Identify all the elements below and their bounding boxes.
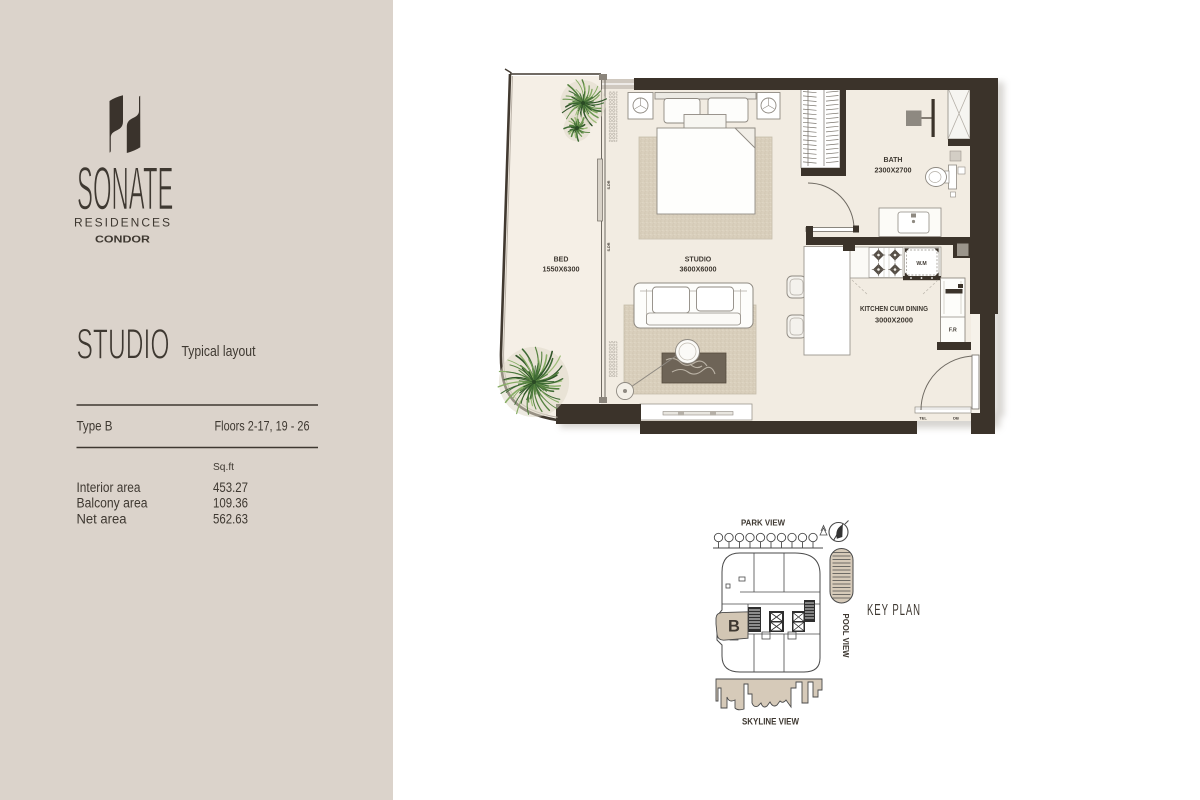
svg-text:Sq.ft: Sq.ft <box>213 461 234 473</box>
svg-text:S.DR: S.DR <box>607 180 611 189</box>
svg-text:BED: BED <box>554 257 569 264</box>
svg-text:3600X6000: 3600X6000 <box>680 267 717 274</box>
svg-text:RESIDENCES: RESIDENCES <box>74 216 170 230</box>
svg-text:W.M: W.M <box>916 261 926 267</box>
svg-text:TEL: TEL <box>919 416 927 421</box>
svg-text:453.27: 453.27 <box>213 480 248 495</box>
svg-text:CONDOR: CONDOR <box>95 235 151 246</box>
svg-text:SONATE: SONATE <box>77 155 174 223</box>
svg-text:DB: DB <box>953 416 959 421</box>
svg-text:Net area: Net area <box>77 512 127 527</box>
svg-text:STUDIO: STUDIO <box>685 257 712 264</box>
svg-text:KITCHEN CUM DINING: KITCHEN CUM DINING <box>860 306 928 313</box>
svg-text:Interior area: Interior area <box>77 480 141 495</box>
svg-text:1550X6300: 1550X6300 <box>543 267 580 274</box>
svg-text:PARK VIEW: PARK VIEW <box>741 518 786 528</box>
svg-text:Balcony area: Balcony area <box>77 496 148 511</box>
svg-text:Type B: Type B <box>77 419 113 434</box>
svg-text:109.36: 109.36 <box>213 496 248 511</box>
svg-text:POOL VIEW: POOL VIEW <box>841 614 851 659</box>
svg-text:STUDIO: STUDIO <box>77 321 170 369</box>
svg-text:Floors 2-17, 19 - 26: Floors 2-17, 19 - 26 <box>215 419 310 434</box>
svg-text:S.DR: S.DR <box>607 242 611 251</box>
svg-text:F.R: F.R <box>949 328 957 334</box>
svg-text:3000X2000: 3000X2000 <box>875 318 913 325</box>
svg-text:B: B <box>728 618 740 636</box>
svg-text:2300X2700: 2300X2700 <box>875 168 912 175</box>
svg-text:KEY PLAN: KEY PLAN <box>867 602 921 619</box>
svg-text:562.63: 562.63 <box>213 512 248 527</box>
svg-text:BATH: BATH <box>884 157 903 164</box>
svg-text:Typical layout: Typical layout <box>182 344 256 360</box>
svg-text:SKYLINE VIEW: SKYLINE VIEW <box>742 717 799 727</box>
